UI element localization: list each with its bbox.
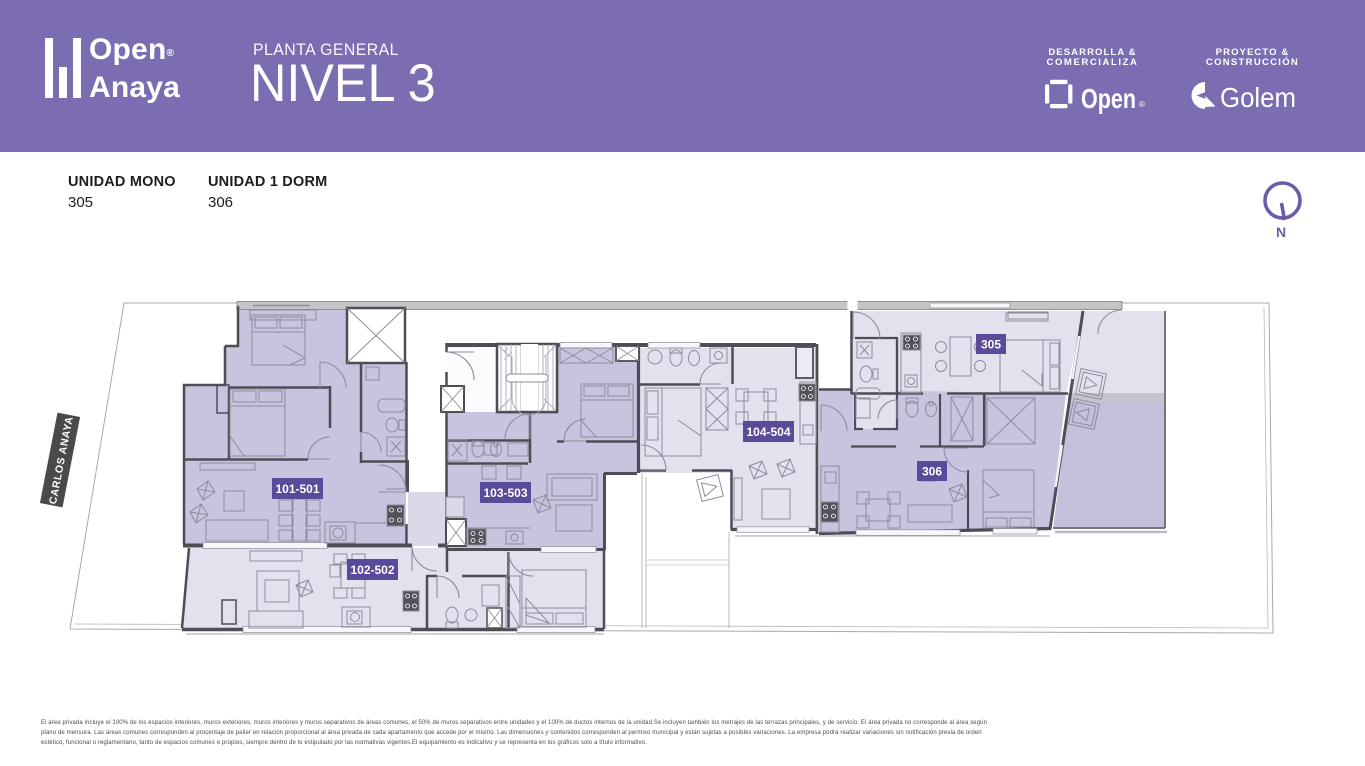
svg-text:104-504: 104-504	[746, 425, 790, 439]
svg-text:102-502: 102-502	[350, 563, 394, 577]
svg-text:101-501: 101-501	[275, 482, 319, 496]
svg-text:306: 306	[922, 465, 942, 479]
svg-text:103-503: 103-503	[483, 486, 527, 500]
svg-text:305: 305	[981, 338, 1001, 352]
